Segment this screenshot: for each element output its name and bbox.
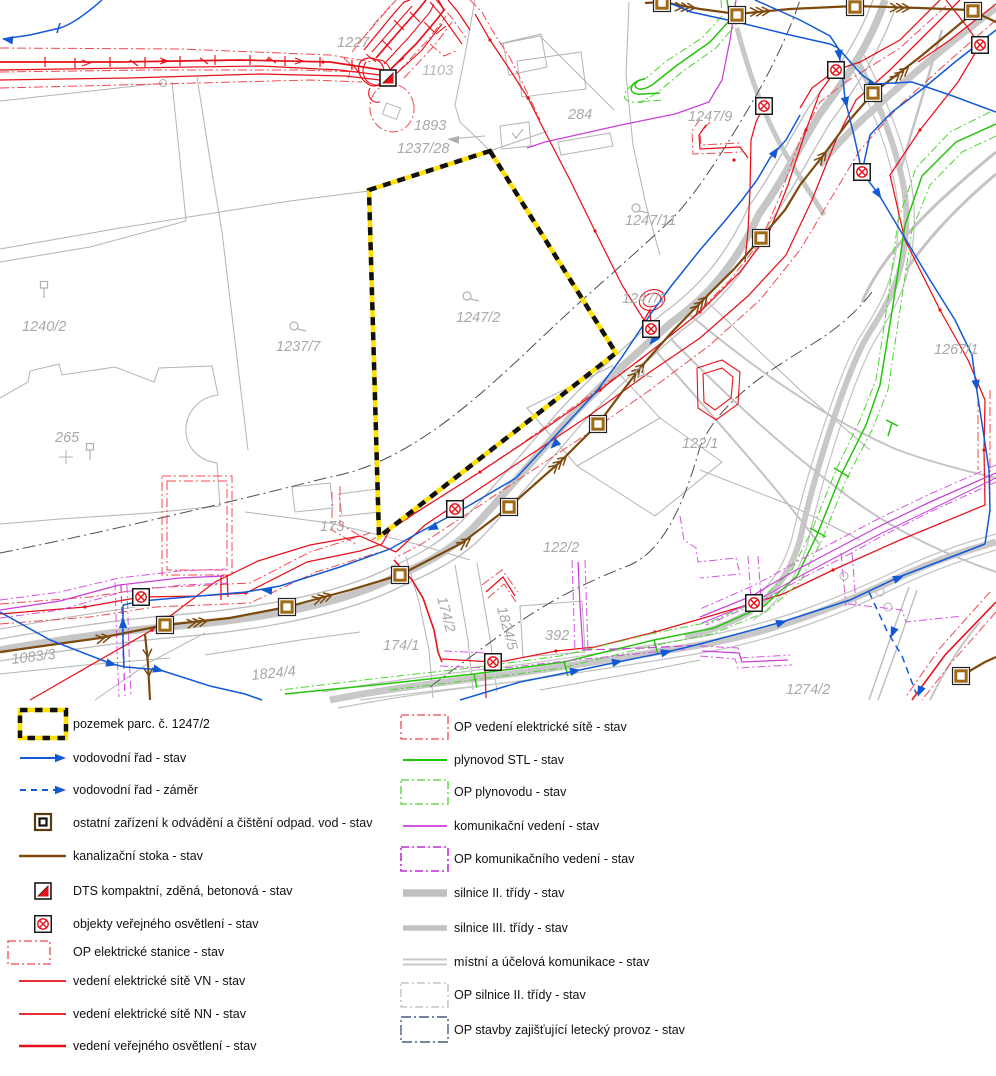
svg-text:1240/2: 1240/2: [22, 319, 66, 335]
svg-text:1227: 1227: [337, 35, 370, 51]
svg-text:173: 173: [320, 519, 344, 535]
svg-text:1237/7: 1237/7: [276, 339, 321, 355]
svg-text:1237/28: 1237/28: [397, 141, 449, 157]
svg-text:284: 284: [567, 107, 592, 123]
svg-text:1893: 1893: [414, 118, 446, 134]
svg-text:122/1: 122/1: [682, 436, 718, 452]
svg-text:komunikační vedení - stav: komunikační vedení - stav: [454, 819, 600, 833]
svg-text:ostatní zařízení k odvádění a: ostatní zařízení k odvádění a čištění od…: [73, 816, 373, 830]
svg-text:vodovodní řad - záměr: vodovodní řad - záměr: [73, 783, 198, 797]
svg-text:silnice II. třídy - stav: silnice II. třídy - stav: [454, 886, 565, 900]
svg-text:plynovod STL - stav: plynovod STL - stav: [454, 753, 565, 767]
svg-text:místní a účelová komunikace -: místní a účelová komunikace - stav: [454, 955, 650, 969]
svg-text:1247/1: 1247/1: [622, 291, 666, 307]
svg-text:122/2: 122/2: [543, 540, 579, 556]
svg-text:OP elektrické stanice - stav: OP elektrické stanice - stav: [73, 945, 225, 959]
svg-text:vedení elektrické sítě VN - st: vedení elektrické sítě VN - stav: [73, 974, 246, 988]
svg-text:kanalizační stoka - stav: kanalizační stoka - stav: [73, 849, 204, 863]
svg-text:pozemek parc. č. 1247/2: pozemek parc. č. 1247/2: [73, 717, 210, 731]
svg-text:silnice III. třídy - stav: silnice III. třídy - stav: [454, 921, 569, 935]
svg-text:vodovodní řad - stav: vodovodní řad - stav: [73, 751, 187, 765]
svg-text:vedení elektrické sítě NN - st: vedení elektrické sítě NN - stav: [73, 1007, 247, 1021]
svg-text:392: 392: [545, 628, 569, 644]
svg-text:265: 265: [54, 430, 80, 446]
svg-text:objekty veřejného osvětlení -: objekty veřejného osvětlení - stav: [73, 917, 259, 931]
svg-text:vedení veřejného osvětlení - s: vedení veřejného osvětlení - stav: [73, 1039, 257, 1053]
svg-text:OP plynovodu - stav: OP plynovodu - stav: [454, 785, 567, 799]
svg-text:1267/1: 1267/1: [934, 342, 978, 358]
svg-text:1247/2: 1247/2: [456, 310, 500, 326]
svg-text:DTS kompaktní, zděná, betonová: DTS kompaktní, zděná, betonová - stav: [73, 884, 293, 898]
svg-text:OP stavby zajišťující letecký: OP stavby zajišťující letecký provoz - s…: [454, 1023, 686, 1037]
svg-text:1247/11: 1247/11: [625, 213, 676, 229]
svg-text:OP silnice II. třídy - stav: OP silnice II. třídy - stav: [454, 988, 587, 1002]
svg-text:OP vedení elektrické sítě - st: OP vedení elektrické sítě - stav: [454, 720, 628, 734]
svg-text:1247/9: 1247/9: [688, 109, 732, 125]
svg-text:174/1: 174/1: [383, 638, 419, 654]
svg-text:1274/2: 1274/2: [786, 682, 830, 698]
svg-text:1103: 1103: [422, 63, 453, 79]
svg-text:OP komunikačního vedení - stav: OP komunikačního vedení - stav: [454, 852, 635, 866]
